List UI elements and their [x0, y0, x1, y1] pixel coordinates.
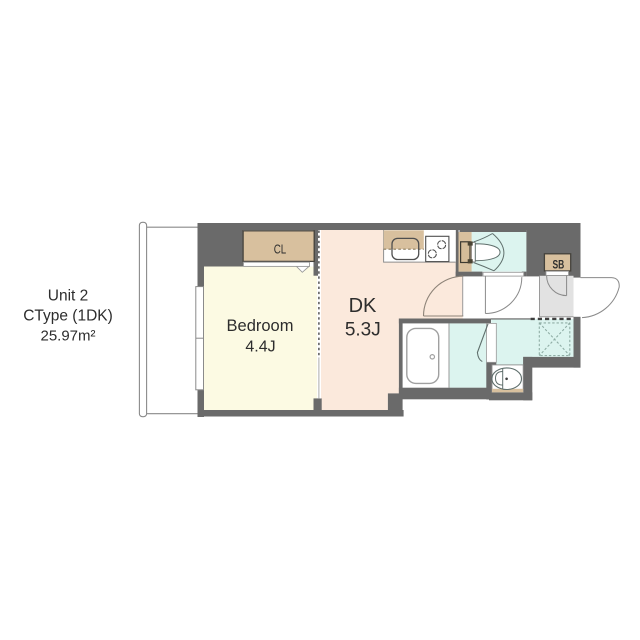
svg-text:25.97m²: 25.97m² — [40, 328, 95, 345]
svg-text:Bedroom: Bedroom — [227, 317, 294, 335]
svg-text:5.3J: 5.3J — [345, 320, 381, 341]
svg-text:CType (1DK): CType (1DK) — [23, 308, 113, 325]
svg-text:CL: CL — [274, 242, 287, 257]
svg-text:Unit 2: Unit 2 — [48, 288, 89, 305]
svg-text:SB: SB — [553, 259, 565, 271]
svg-text:4.4J: 4.4J — [245, 339, 275, 356]
svg-text:DK: DK — [349, 295, 377, 317]
